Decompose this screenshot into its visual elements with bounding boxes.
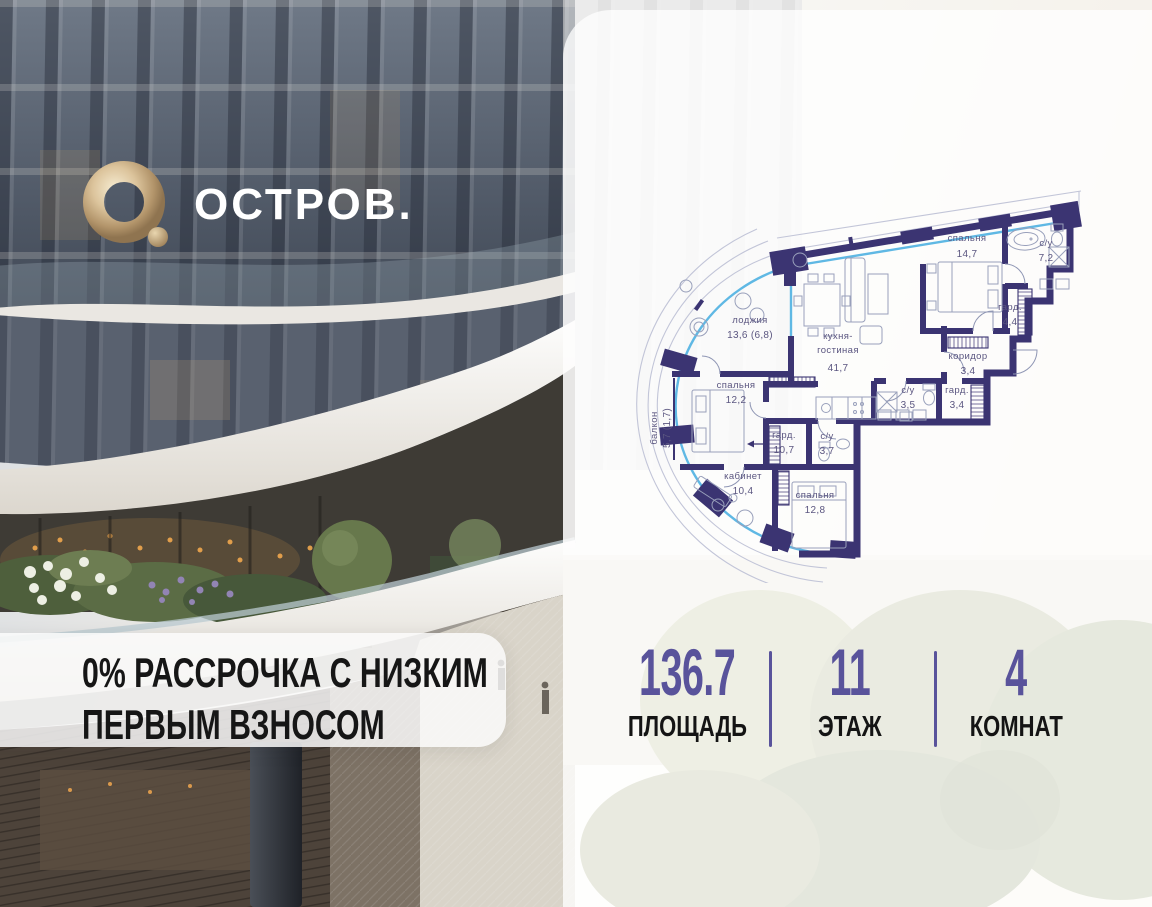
promo-text: 0% РАССРОЧКА С НИЗКИМ ПЕРВЫМ ВЗНОСОМ bbox=[82, 647, 646, 751]
room-name: спальня bbox=[796, 490, 835, 501]
promo-card: 0% РАССРОЧКА С НИЗКИМ ПЕРВЫМ ВЗНОСОМ bbox=[0, 633, 506, 747]
stat-area: 136.7 ПЛОЩАДЬ bbox=[602, 644, 772, 742]
room-area: 14,7 bbox=[957, 249, 978, 260]
room-name: спальня bbox=[717, 380, 756, 391]
stat-floor-value: 11 bbox=[830, 644, 871, 700]
room-area: 3,4 bbox=[961, 366, 976, 377]
room-name: спальня bbox=[948, 233, 987, 244]
room-name: балкон bbox=[649, 411, 660, 444]
stat-floor: 11 ЭТАЖ bbox=[765, 644, 935, 742]
room-name: гард. bbox=[945, 385, 969, 396]
stat-rooms: 4 КОМНАТ bbox=[931, 644, 1101, 742]
promo-screenshot: ОСТРОВ. bbox=[0, 0, 1152, 907]
room-name: с/у bbox=[1039, 238, 1052, 249]
room-area: 10,7 bbox=[774, 445, 795, 456]
room-name: лоджия bbox=[732, 315, 767, 326]
room-name: с/у bbox=[820, 431, 833, 442]
room-name: коридор bbox=[948, 351, 987, 362]
room-name: с/у bbox=[901, 385, 914, 396]
floor-plan: лоджия 13,6 (6,8) кухня- гостиная 41,7 с… bbox=[628, 183, 1098, 583]
room-area: 10,4 bbox=[733, 486, 754, 497]
room-area: 12,8 bbox=[805, 505, 826, 516]
brand-logo: ОСТРОВ. bbox=[78, 156, 414, 252]
room-area: 7,2 bbox=[1039, 253, 1054, 264]
stat-area-value: 136.7 bbox=[639, 644, 735, 700]
room-name: гард. bbox=[998, 302, 1022, 313]
room-name: кабинет bbox=[724, 471, 762, 482]
room-area: 3,5 bbox=[901, 400, 916, 411]
room-area: 3,4 bbox=[950, 400, 965, 411]
stat-rooms-label: КОМНАТ bbox=[969, 712, 1062, 742]
room-area: 3,7 bbox=[820, 446, 835, 457]
room-area: 12,2 bbox=[726, 395, 747, 406]
stat-floor-label: ЭТАЖ bbox=[818, 712, 882, 742]
stat-rooms-value: 4 bbox=[1005, 644, 1026, 700]
pillar bbox=[250, 742, 302, 907]
room-area: 5,7 (1,7) bbox=[662, 408, 673, 448]
promo-line-2: ПЕРВЫМ ВЗНОСОМ bbox=[82, 699, 385, 751]
room-name: гостиная bbox=[817, 345, 859, 356]
room-name: кухня- bbox=[823, 331, 853, 342]
promo-line-1: 0% РАССРОЧКА С НИЗКИМ bbox=[82, 647, 488, 699]
room-name: гард. bbox=[772, 430, 796, 441]
brand-name: ОСТРОВ. bbox=[194, 178, 414, 230]
ostrov-gold-o-icon bbox=[78, 156, 174, 252]
room-area: 13,6 (6,8) bbox=[727, 330, 773, 341]
room-area: 4,4 bbox=[1003, 317, 1018, 328]
room-area: 41,7 bbox=[828, 363, 849, 374]
stat-area-label: ПЛОЩАДЬ bbox=[627, 712, 746, 742]
